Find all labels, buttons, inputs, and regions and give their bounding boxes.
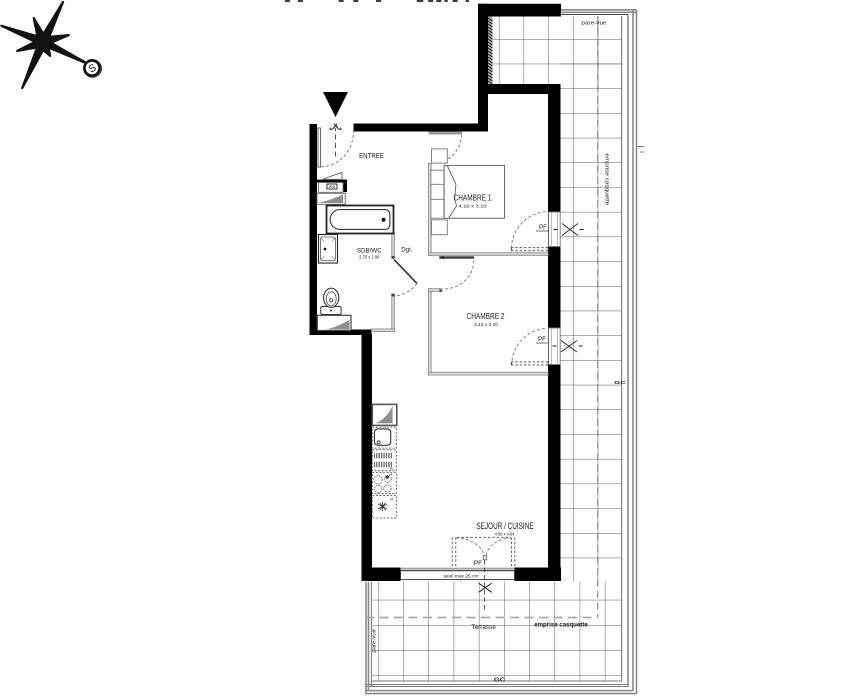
svg-text:SDB/WC: SDB/WC xyxy=(357,247,382,254)
svg-text:GC: GC xyxy=(494,678,505,684)
svg-text:emprise casquette: emprise casquette xyxy=(604,153,610,205)
svg-text:PF: PF xyxy=(539,224,547,231)
svg-text:CHAMBRE 2: CHAMBRE 2 xyxy=(467,312,505,321)
svg-text:pare-vue: pare-vue xyxy=(371,629,377,653)
svg-text:seuil max 25 cm: seuil max 25 cm xyxy=(444,574,479,579)
svg-text:WM: WM xyxy=(329,185,335,189)
svg-text:Terrasse: Terrasse xyxy=(471,624,496,631)
svg-text:emprise casquette: emprise casquette xyxy=(534,623,588,629)
svg-text:pare-vue: pare-vue xyxy=(581,21,606,27)
svg-text:Dgt.: Dgt. xyxy=(401,246,412,253)
svg-text:PF: PF xyxy=(538,336,546,343)
svg-text:GC: GC xyxy=(614,380,626,386)
svg-text:ENTREE: ENTREE xyxy=(359,151,384,160)
svg-text:PF: PF xyxy=(474,560,482,567)
svg-text:4.98 x 4.64: 4.98 x 4.64 xyxy=(495,531,515,536)
svg-text:2.75 x 1.98: 2.75 x 1.98 xyxy=(359,254,380,259)
svg-text:CHAMBRE 1: CHAMBRE 1 xyxy=(454,193,492,202)
svg-text:3.13 x 3.10: 3.13 x 3.10 xyxy=(474,322,498,328)
svg-text:SEJOUR / CUISINE: SEJOUR / CUISINE xyxy=(476,521,533,531)
svg-text:R: R xyxy=(390,497,393,501)
svg-text:4.10 x 3.10: 4.10 x 3.10 xyxy=(459,204,487,210)
